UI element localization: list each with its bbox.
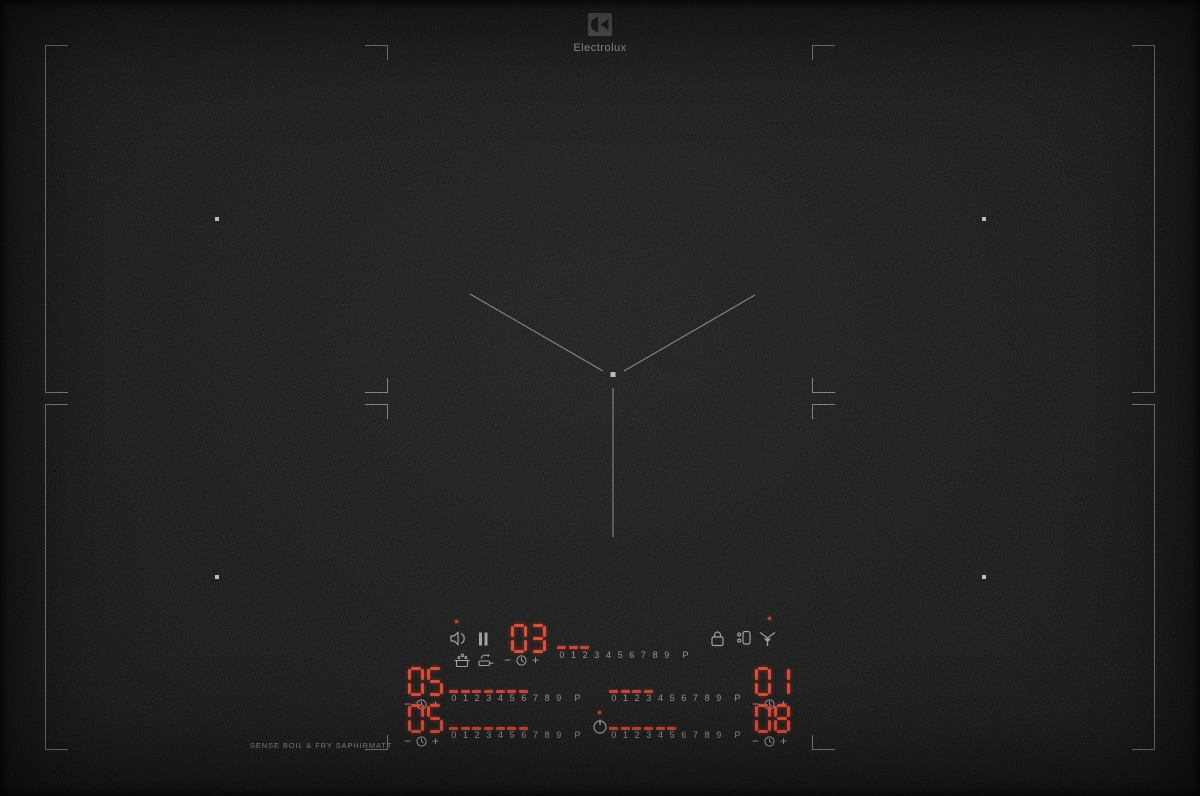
hood-icon[interactable]: [759, 629, 776, 648]
power-display-back-right: [755, 667, 790, 696]
zone-center-dot: [982, 217, 986, 221]
cooking-zone-back-right: [812, 45, 1155, 393]
power-slider-front-right[interactable]: 0123456789P: [608, 725, 742, 743]
timer-minus-button[interactable]: −: [752, 735, 759, 747]
power-display-front-right: [755, 704, 790, 733]
clock-icon[interactable]: [416, 736, 427, 747]
timer-controls-center: − +: [504, 654, 539, 666]
power-slider-front-left[interactable]: 0123456789P: [448, 725, 582, 743]
cooking-zone-center: [440, 266, 790, 546]
timer-plus-button[interactable]: +: [780, 735, 787, 747]
sensefry-icon[interactable]: [477, 651, 495, 669]
brand-logo: Electrolux: [0, 13, 1200, 54]
zone-center-dot: [982, 575, 986, 579]
electrolux-mark-icon: [588, 13, 612, 36]
lock-icon[interactable]: [710, 630, 725, 647]
timer-plus-button[interactable]: +: [432, 735, 439, 747]
timer-minus-button[interactable]: −: [504, 654, 511, 666]
power-indicator-led: [598, 711, 601, 714]
bridge-icon[interactable]: [736, 629, 752, 647]
timer-controls-front-right: − +: [752, 735, 787, 747]
pause-icon[interactable]: [477, 632, 489, 646]
timer-plus-button[interactable]: +: [532, 654, 539, 666]
sound-indicator-led: [455, 620, 458, 623]
brand-logotype: Electrolux: [573, 42, 626, 54]
model-label: SENSE BOIL & FRY SAPHIRMATT: [250, 741, 392, 750]
senseboil-icon[interactable]: [453, 651, 471, 669]
power-slider-center[interactable]: 0123456789P: [556, 645, 690, 663]
power-slider-back-right[interactable]: 0123456789P: [608, 688, 742, 706]
power-display-center: [511, 624, 546, 653]
clock-icon[interactable]: [764, 736, 775, 747]
power-display-back-left: [408, 667, 443, 696]
timer-controls-front-left: − +: [404, 735, 439, 747]
clock-icon[interactable]: [516, 655, 527, 666]
zone-center-dot: [611, 372, 616, 377]
power-display-front-left: [408, 704, 443, 733]
cooking-zone-front-left: [45, 404, 388, 750]
zone-center-dot: [215, 575, 219, 579]
hood-indicator-led: [768, 617, 771, 620]
cooking-zone-back-left: [45, 45, 388, 393]
cooktop-surface: Electrolux 0123456: [0, 0, 1200, 796]
cooking-zone-front-right: [812, 404, 1155, 750]
power-icon[interactable]: [592, 718, 608, 735]
zone-center-dot: [215, 217, 219, 221]
timer-minus-button[interactable]: −: [404, 735, 411, 747]
power-slider-back-left[interactable]: 0123456789P: [448, 688, 582, 706]
sound-icon[interactable]: [449, 629, 465, 648]
